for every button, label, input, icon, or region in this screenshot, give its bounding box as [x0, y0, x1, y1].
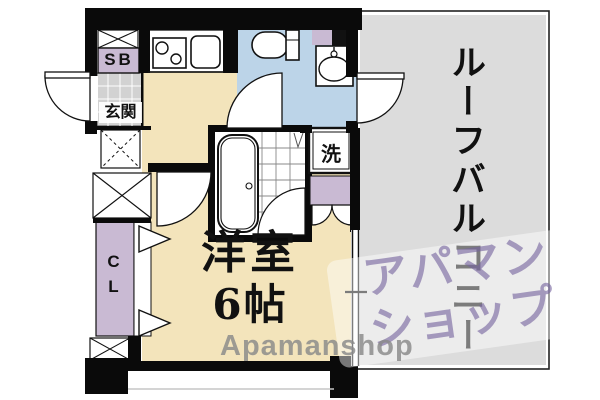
washing-machine-pan [309, 128, 353, 173]
stove-icon [153, 38, 186, 68]
floor-plan: SB 玄関 CL 洗 洋室 6帖 ルーフバルコニー アパマン ショップ Apam… [0, 0, 600, 400]
bottom-cross-box [90, 338, 130, 360]
toilet-icon [252, 30, 299, 60]
kitchen-sink-icon [191, 36, 220, 68]
shoe-box [98, 48, 139, 73]
bathtub-icon [218, 135, 258, 232]
storage-box [310, 176, 352, 205]
kitchen-counter [148, 30, 224, 72]
bathroom [208, 125, 312, 242]
entrance-tile [97, 73, 142, 126]
shaft-cross-box [93, 173, 151, 218]
watermark-logo-latin: Apamanshop [220, 330, 414, 363]
shoe-box-top-cross [98, 30, 138, 48]
closet-cl [96, 222, 134, 336]
shaft-cross-box-dashed [101, 130, 140, 168]
entrance-door-arc [45, 72, 90, 121]
corner-shelf [312, 30, 332, 45]
